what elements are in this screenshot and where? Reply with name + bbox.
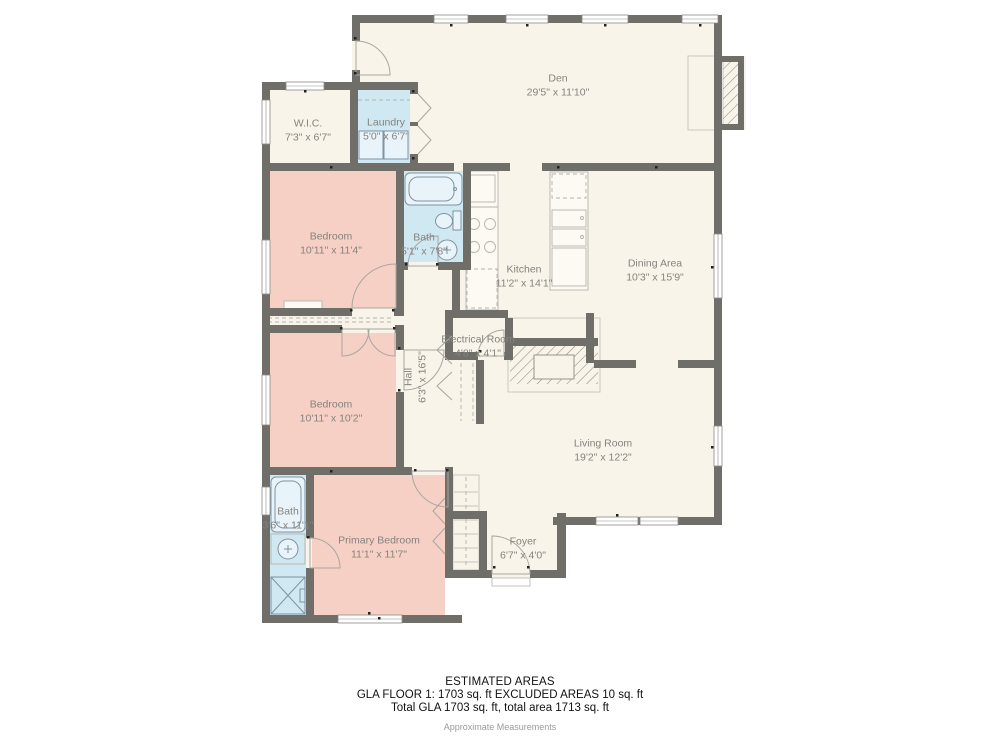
room-label-laundry: Laundry5'0" x 6'7" [363,116,409,143]
room-label-living-room: Living Room19'2" x 12'2" [574,437,632,464]
floorplan-drawing [0,0,1000,750]
footer-title: ESTIMATED AREAS [0,676,1000,688]
floorplan-page: Den29'5" x 11'10" W.I.C.7'3" x 6'7" Laun… [0,0,1000,750]
room-label-primary-bedroom: Primary Bedroom11'1" x 11'7" [338,534,420,561]
footer-gla-line: GLA FLOOR 1: 1703 sq. ft EXCLUDED AREAS … [0,689,1000,701]
room-label-foyer: Foyer6'7" x 4'0" [500,535,546,562]
room-label-bath-1: Bath5'1" x 7'8" [401,231,447,258]
room-label-dining-area: Dining Area10'3" x 15'9" [626,257,684,284]
room-label-bedroom-2: Bedroom10'11" x 10'2" [300,398,363,425]
room-label-bedroom-1: Bedroom10'11" x 11'4" [300,230,362,257]
footer-note: Approximate Measurements [0,722,1000,732]
room-label-electrical-room: Electrical Room4'8" x 4'1" [441,333,515,360]
room-label-den: Den29'5" x 11'10" [527,72,590,99]
room-label-kitchen: Kitchen11'2" x 14'1" [496,263,553,290]
room-label-bath-2: Bath3'6" x 11'1" [263,505,314,532]
room-label-hall: Hall6'3" x 16'5" [402,351,429,403]
room-label-wic: W.I.C.7'3" x 6'7" [285,117,331,144]
estimated-areas-footer: ESTIMATED AREAS GLA FLOOR 1: 1703 sq. ft… [0,676,1000,732]
footer-total-line: Total GLA 1703 sq. ft, total area 1713 s… [0,702,1000,714]
